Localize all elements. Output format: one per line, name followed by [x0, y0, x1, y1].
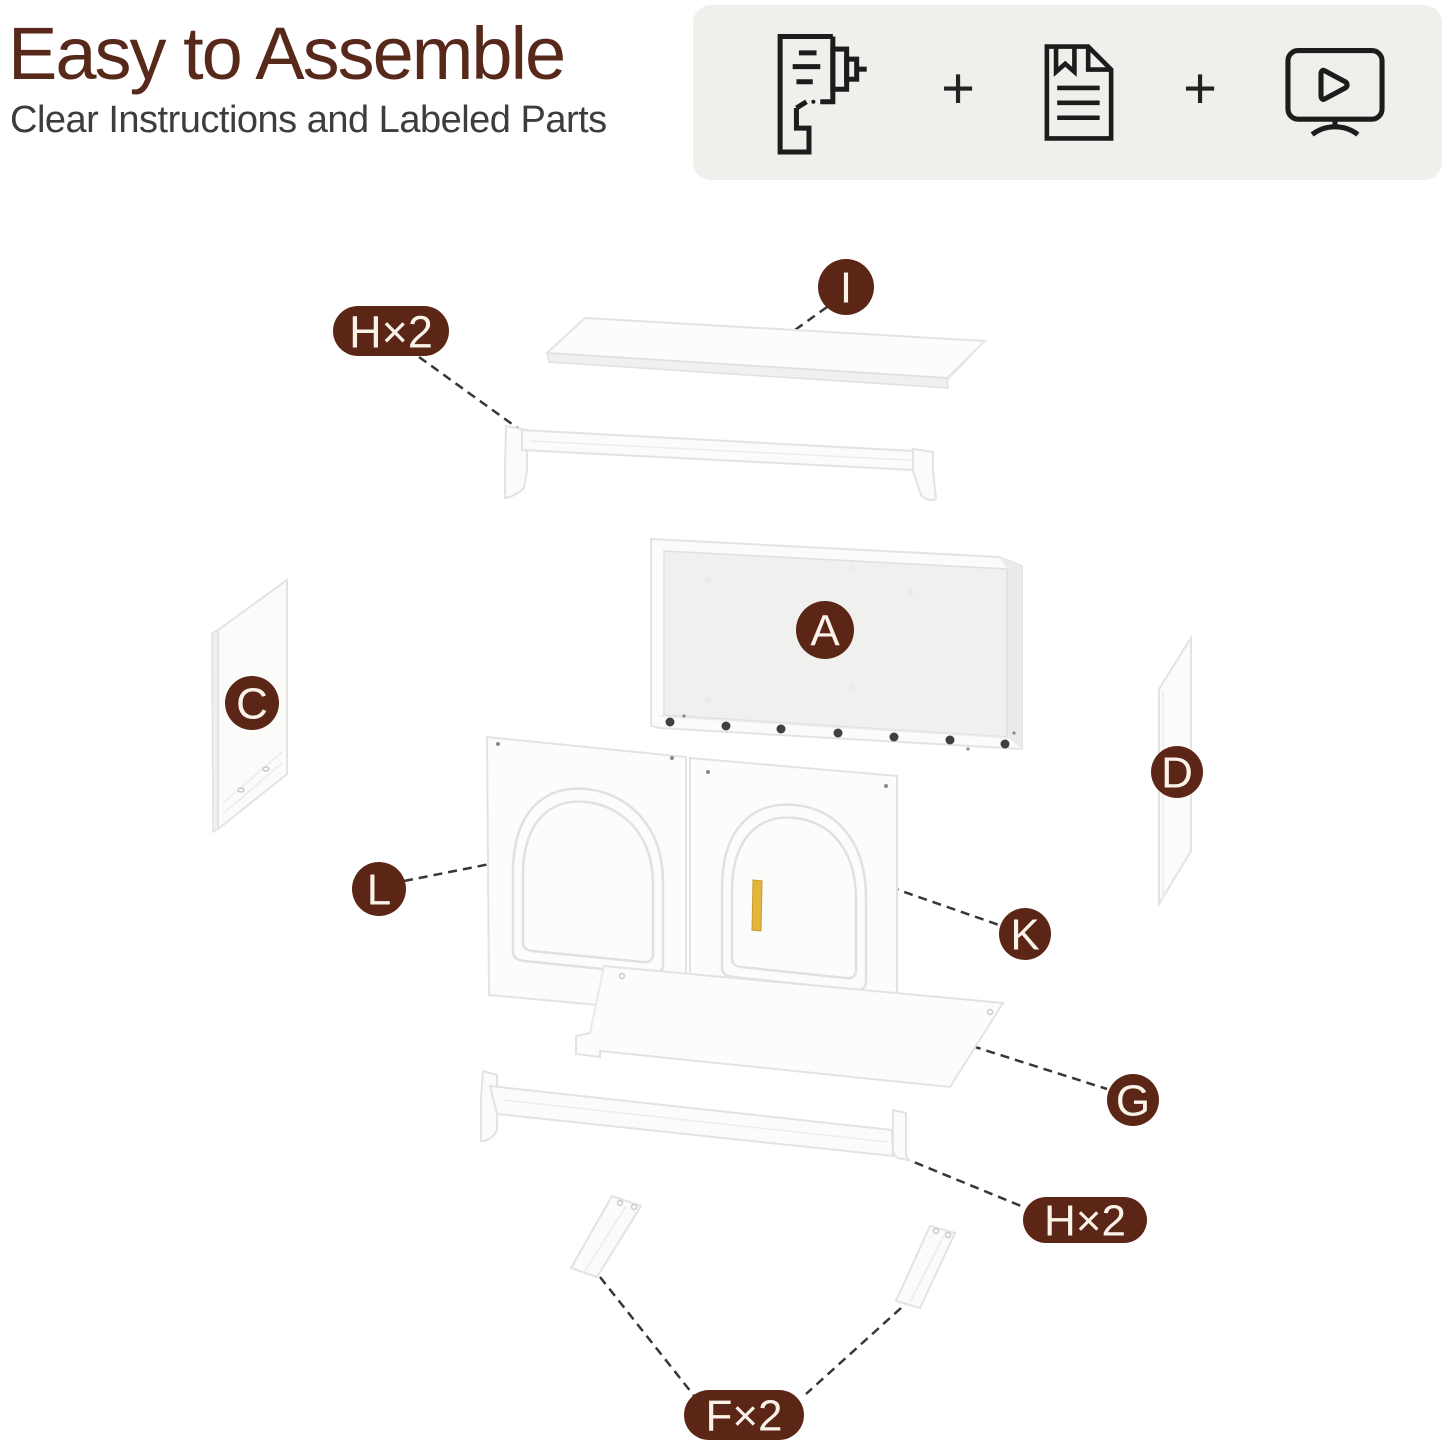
- svg-text:I: I: [840, 264, 852, 313]
- svg-text:C: C: [236, 680, 268, 729]
- part-top-shelf: [547, 318, 985, 388]
- part-label-I: I: [818, 259, 874, 315]
- assembly-diagram: I H×2 A C D L K G: [0, 0, 1445, 1441]
- part-mounting-bracket-left: [571, 1196, 641, 1277]
- svg-text:D: D: [1161, 749, 1193, 798]
- part-label-H-bottom: H×2: [1023, 1197, 1147, 1246]
- part-label-D: D: [1151, 746, 1203, 798]
- svg-text:G: G: [1116, 1077, 1150, 1126]
- part-mounting-bracket-right: [896, 1226, 955, 1308]
- svg-text:K: K: [1010, 911, 1039, 960]
- svg-text:H×2: H×2: [1044, 1197, 1126, 1246]
- svg-text:L: L: [367, 866, 391, 915]
- part-label-C: C: [225, 676, 279, 730]
- header: Easy to Assemble Clear Instructions and …: [8, 16, 607, 142]
- svg-text:A: A: [810, 607, 840, 656]
- part-hanging-rod-bottom: [481, 1071, 909, 1160]
- part-label-A: A: [796, 601, 854, 659]
- svg-text:H×2: H×2: [349, 307, 433, 358]
- plus-sign: +: [1183, 60, 1217, 118]
- drill-icon: [749, 29, 874, 157]
- part-bottom-shelf: [576, 966, 1003, 1087]
- product-infographic: Easy to Assemble Clear Instructions and …: [0, 0, 1445, 1441]
- part-label-H-top: H×2: [333, 306, 449, 358]
- page-title: Easy to Assemble: [8, 16, 607, 91]
- part-label-G: G: [1107, 1074, 1159, 1126]
- part-label-L: L: [352, 862, 406, 916]
- part-label-F: F×2: [684, 1390, 804, 1441]
- plus-sign: +: [941, 60, 975, 118]
- svg-text:F×2: F×2: [705, 1392, 782, 1441]
- video-tutorial-icon: [1284, 48, 1386, 137]
- toolkit-panel: + +: [693, 5, 1442, 180]
- part-hanging-rod-top: [505, 426, 936, 500]
- instruction-manual-icon: [1042, 42, 1116, 143]
- part-label-K: K: [999, 908, 1051, 960]
- page-subtitle: Clear Instructions and Labeled Parts: [10, 99, 607, 142]
